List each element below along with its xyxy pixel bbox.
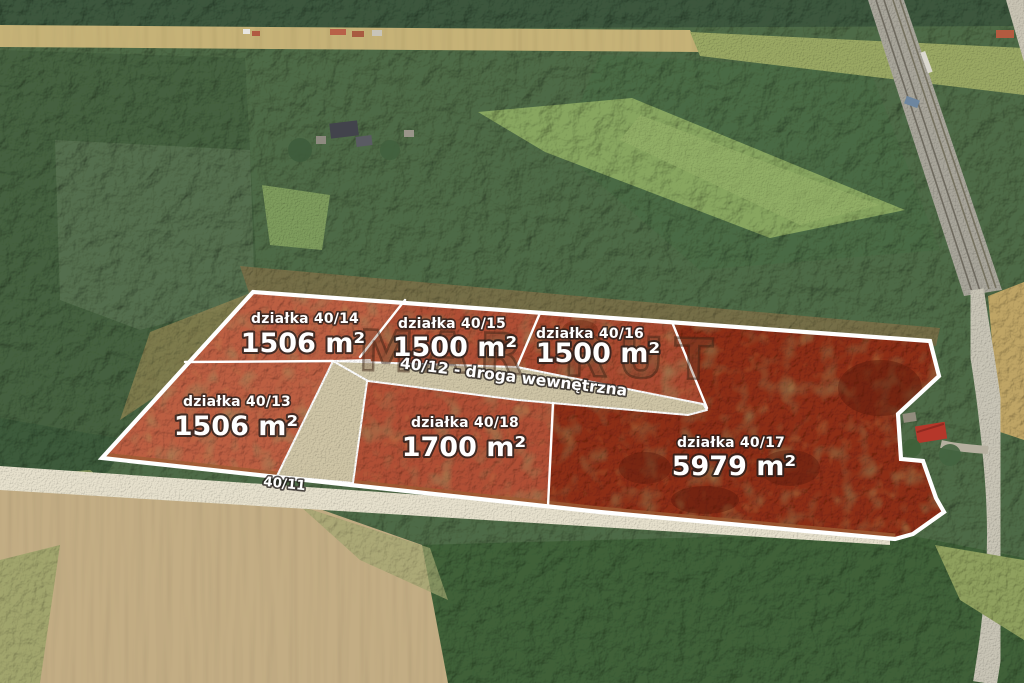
plot-40-15-name: działka 40/15	[398, 316, 506, 332]
distant-building	[996, 30, 1014, 38]
plot-40-13-area: 1506 m²	[174, 411, 299, 442]
plot-40-13-name: działka 40/13	[183, 394, 291, 410]
aerial-photo: MAR RUT działka 40/14 1506 m² działka 40…	[0, 0, 1024, 683]
distant-building	[352, 31, 364, 37]
plot-40-14-area: 1506 m²	[241, 328, 366, 359]
house-roof	[316, 136, 326, 144]
plot-40-14-name: działka 40/14	[251, 311, 359, 327]
house-roof	[404, 130, 414, 137]
distant-building	[252, 31, 260, 36]
distant-building	[243, 29, 250, 34]
plot-40-16-area: 1500 m²	[536, 338, 661, 369]
distant-building	[330, 29, 346, 35]
house-roof	[355, 135, 372, 147]
aerial-photo-stage: MAR RUT działka 40/14 1506 m² działka 40…	[0, 0, 1024, 683]
plot-40-17-area: 5979 m²	[672, 451, 797, 482]
plot-40-17-name: działka 40/17	[677, 435, 785, 451]
distant-building	[372, 30, 382, 36]
plot-40-18-area: 1700 m²	[402, 432, 527, 463]
boundary-13-14	[185, 361, 333, 362]
plot-40-18-name: działka 40/18	[411, 415, 519, 431]
